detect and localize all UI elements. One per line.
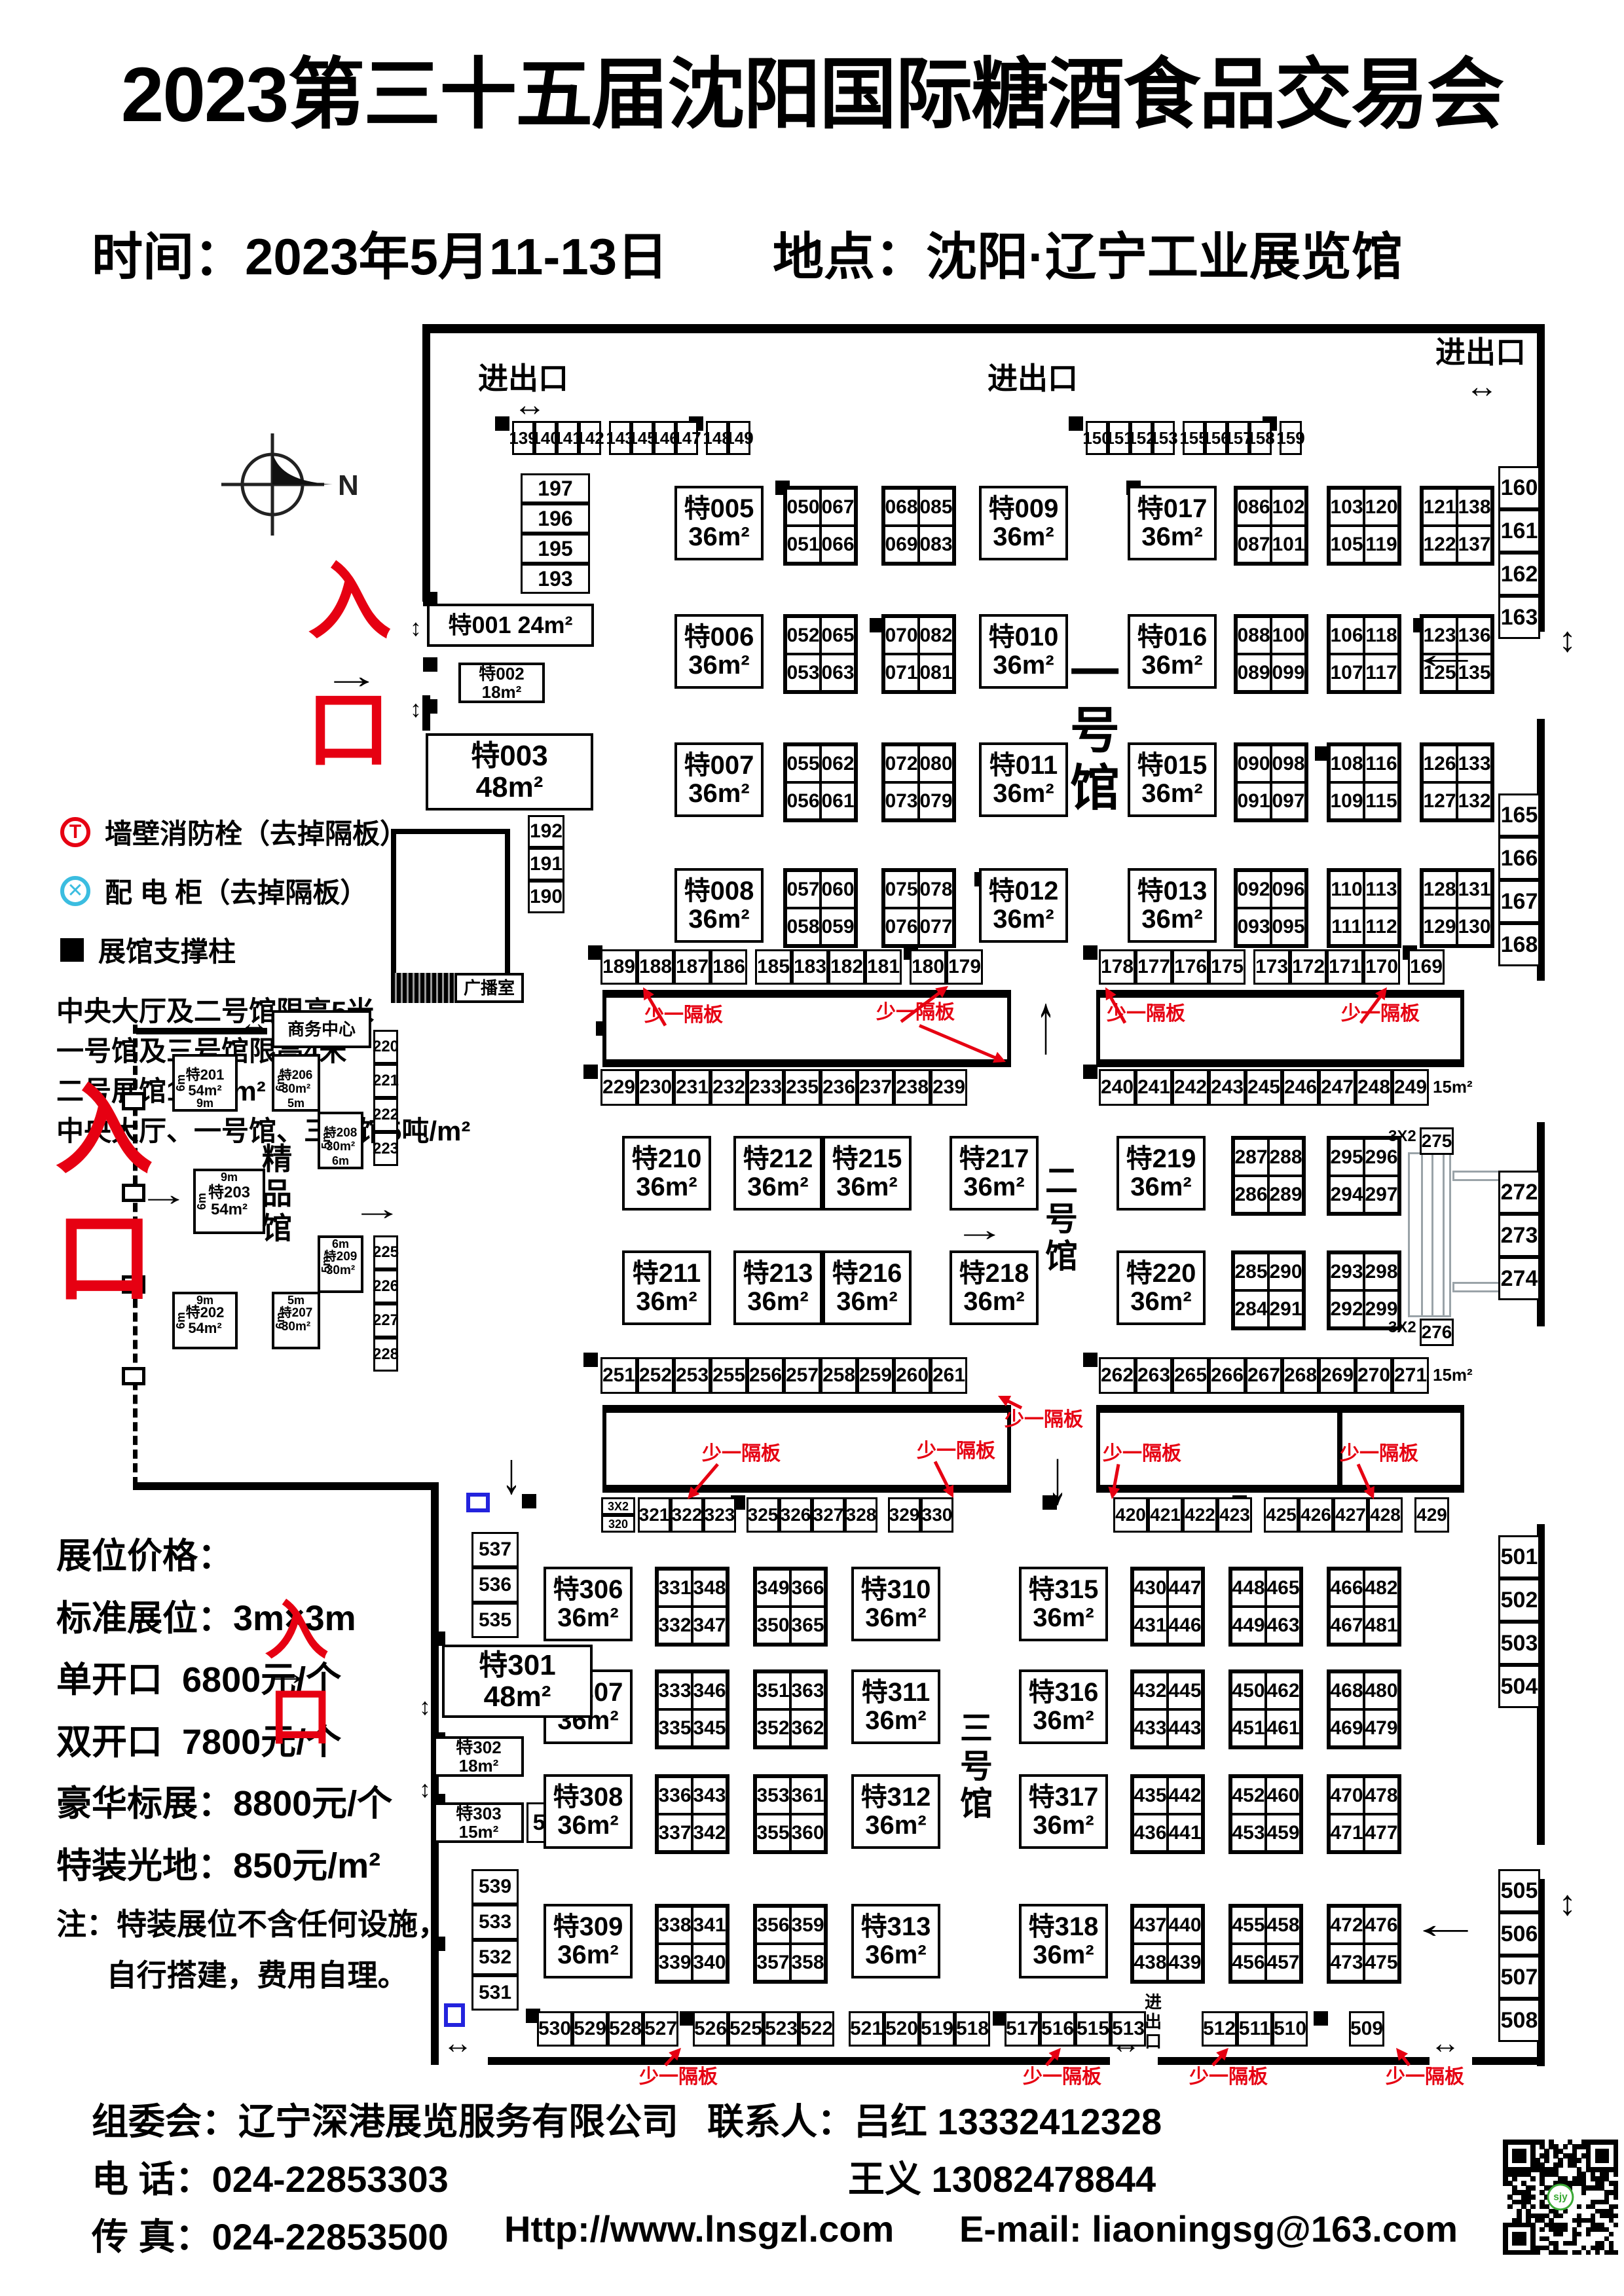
booth-237: 237 bbox=[857, 1069, 894, 1106]
special-booth-特010: 特01036m² bbox=[979, 614, 1068, 689]
booth-241: 241 bbox=[1135, 1069, 1172, 1106]
booth-cluster: 455458456457 bbox=[1228, 1904, 1303, 1984]
booth-cluster: 437440438439 bbox=[1130, 1904, 1205, 1984]
pricing-block: 展位价格： 标准展位：3m×3m 单开口 6800元/个 双开口 7800元/个… bbox=[56, 1525, 392, 1897]
qr-code: sjy bbox=[1503, 2140, 1618, 2255]
booth-527: 527 bbox=[643, 2011, 678, 2047]
contact-person1: 联系人：吕红 13332412328 bbox=[707, 2092, 1162, 2145]
booth-196: 196 bbox=[521, 503, 590, 534]
booth-095: 095 bbox=[1271, 908, 1306, 945]
booth-289: 289 bbox=[1268, 1176, 1303, 1213]
dim-label: 6m bbox=[175, 1312, 187, 1329]
booth-068: 068 bbox=[884, 488, 919, 526]
booth-358: 358 bbox=[790, 1944, 825, 1981]
dim-label: 9m bbox=[221, 1171, 238, 1183]
booth-431: 431 bbox=[1133, 1607, 1168, 1644]
gap-arrow: ↔ bbox=[1430, 2026, 1460, 2060]
special-booth-特201: 特20154m²9m6m bbox=[172, 1054, 238, 1112]
booth-cluster: 336343337342 bbox=[655, 1774, 729, 1854]
booth-102: 102 bbox=[1271, 488, 1306, 526]
booth-338: 338 bbox=[657, 1906, 692, 1944]
booth-327: 327 bbox=[812, 1497, 845, 1533]
booth-131: 131 bbox=[1457, 871, 1492, 908]
booth-167: 167 bbox=[1498, 880, 1540, 923]
partition-note: 少一隔板 bbox=[1386, 2066, 1464, 2089]
booth-363: 363 bbox=[790, 1672, 825, 1709]
booth-173: 173 bbox=[1253, 949, 1290, 985]
booth-274: 274 bbox=[1498, 1257, 1540, 1300]
booth-170: 170 bbox=[1363, 949, 1400, 985]
booth-122: 122 bbox=[1422, 526, 1457, 563]
booth-421: 421 bbox=[1148, 1497, 1183, 1533]
booth-472: 472 bbox=[1329, 1906, 1364, 1944]
partition-note: 少一隔板 bbox=[1341, 1003, 1420, 1026]
booth-326: 326 bbox=[779, 1497, 812, 1533]
place-line: 地点：沈阳·辽宁工业展览馆 bbox=[773, 216, 1403, 289]
entry-exit-label: 进出口 bbox=[1435, 335, 1526, 370]
booth-359: 359 bbox=[790, 1906, 825, 1944]
special-booth-特210: 特21036m² bbox=[622, 1136, 711, 1211]
booth-197: 197 bbox=[521, 473, 590, 503]
booth-293: 293 bbox=[1329, 1253, 1364, 1290]
area-note: 15m² bbox=[1433, 1078, 1473, 1097]
flow-arrow: ↑ bbox=[1036, 973, 1056, 1072]
special-booth-特303: 特30315m² bbox=[434, 1802, 524, 1843]
dim-label: 6m bbox=[175, 1074, 187, 1091]
booth-107: 107 bbox=[1329, 654, 1364, 691]
booth-504: 504 bbox=[1498, 1665, 1540, 1708]
support-pillar-icon bbox=[1083, 945, 1098, 960]
booth-510: 510 bbox=[1272, 2011, 1308, 2047]
booth-459: 459 bbox=[1266, 1814, 1301, 1851]
booth-476: 476 bbox=[1364, 1906, 1399, 1944]
booth-366: 366 bbox=[790, 1569, 825, 1607]
booth-128: 128 bbox=[1422, 871, 1457, 908]
booth-059: 059 bbox=[821, 908, 855, 945]
booth-285: 285 bbox=[1234, 1253, 1268, 1290]
booth-455: 455 bbox=[1231, 1906, 1266, 1944]
booth-cluster: 110113111112 bbox=[1327, 868, 1401, 948]
fax-line: 传 真：024-22853500 bbox=[92, 2208, 449, 2261]
size-note: 3X2 bbox=[1388, 1127, 1416, 1146]
legend-pillar: 展馆支撑柱 bbox=[60, 930, 236, 970]
special-booth-特317: 特31736m² bbox=[1019, 1774, 1108, 1849]
booth-cluster: 088100089099 bbox=[1234, 614, 1308, 694]
booth-536: 536 bbox=[471, 1567, 519, 1603]
corridor-room bbox=[1096, 990, 1464, 1067]
wall bbox=[505, 829, 510, 975]
booth-115: 115 bbox=[1364, 782, 1399, 820]
booth-121: 121 bbox=[1422, 488, 1457, 526]
booth-247: 247 bbox=[1319, 1069, 1356, 1106]
booth-539: 539 bbox=[471, 1869, 519, 1904]
booth-479: 479 bbox=[1364, 1709, 1399, 1747]
booth-532: 532 bbox=[471, 1940, 519, 1975]
booth-331: 331 bbox=[657, 1569, 692, 1607]
booth-078: 078 bbox=[919, 871, 953, 908]
booth-447: 447 bbox=[1168, 1569, 1202, 1607]
booth-cluster: 128131129130 bbox=[1420, 868, 1494, 948]
booth-191: 191 bbox=[528, 848, 564, 881]
booth-cluster: 121138122137 bbox=[1420, 486, 1494, 566]
booth-060: 060 bbox=[821, 871, 855, 908]
special-booth-特208: 特20830m²6m5m bbox=[318, 1112, 363, 1169]
booth-238: 238 bbox=[894, 1069, 931, 1106]
gap-arrow: ↔ bbox=[1466, 368, 1498, 406]
booth-481: 481 bbox=[1364, 1607, 1399, 1644]
booth-242: 242 bbox=[1172, 1069, 1209, 1106]
booth-272: 272 bbox=[1498, 1171, 1540, 1214]
booth-147: 147 bbox=[676, 421, 698, 455]
gap-arrow: ↔ bbox=[1111, 2026, 1141, 2060]
booth-362: 362 bbox=[790, 1709, 825, 1747]
booth-187: 187 bbox=[674, 949, 710, 985]
booth-530: 530 bbox=[537, 2011, 572, 2047]
booth-503: 503 bbox=[1498, 1622, 1540, 1665]
booth-322: 322 bbox=[671, 1497, 703, 1533]
partition-note: 少一隔板 bbox=[1189, 2066, 1268, 2089]
flow-arrow: → bbox=[351, 1190, 403, 1228]
booth-427: 427 bbox=[1333, 1497, 1368, 1533]
booth-448: 448 bbox=[1231, 1569, 1266, 1607]
booth-506: 506 bbox=[1498, 1912, 1540, 1956]
contact-person2: 王义 13082478844 bbox=[848, 2150, 1156, 2203]
special-booth-特301: 特30148m² bbox=[442, 1645, 593, 1718]
booth-093: 093 bbox=[1236, 908, 1271, 945]
special-booth-特005: 特00536m² bbox=[674, 486, 764, 560]
booth-502: 502 bbox=[1498, 1578, 1540, 1622]
booth-cluster: 295296294297 bbox=[1327, 1136, 1401, 1216]
page-title: 2023第三十五届沈阳国际糖酒食品交易会 bbox=[0, 31, 1624, 143]
booth-335: 335 bbox=[657, 1709, 692, 1747]
booth-166: 166 bbox=[1498, 837, 1540, 880]
booth-529: 529 bbox=[572, 2011, 608, 2047]
booth-437: 437 bbox=[1133, 1906, 1168, 1944]
qr-logo: sjy bbox=[1547, 2183, 1574, 2210]
wall bbox=[391, 829, 510, 834]
gap-arrow: ↕ bbox=[419, 1776, 431, 1802]
booth-101: 101 bbox=[1271, 526, 1306, 563]
booth-061: 061 bbox=[821, 782, 855, 820]
entrance-label: 口 bbox=[268, 1680, 333, 1754]
booth-265: 265 bbox=[1172, 1357, 1209, 1394]
booth-091: 091 bbox=[1236, 782, 1271, 820]
booth-257: 257 bbox=[784, 1357, 821, 1394]
booth-521: 521 bbox=[849, 2011, 884, 2047]
booth-222: 222 bbox=[373, 1098, 398, 1132]
support-pillar-icon bbox=[423, 699, 437, 714]
booth-075: 075 bbox=[884, 871, 919, 908]
booth-446: 446 bbox=[1168, 1607, 1202, 1644]
booth-429: 429 bbox=[1414, 1497, 1449, 1533]
booth-273: 273 bbox=[1498, 1214, 1540, 1257]
wall bbox=[391, 829, 396, 975]
booth-072: 072 bbox=[884, 745, 919, 782]
booth-436: 436 bbox=[1133, 1814, 1168, 1851]
booth-050: 050 bbox=[786, 488, 821, 526]
booth-cluster: 468480469479 bbox=[1327, 1669, 1401, 1749]
booth-356: 356 bbox=[756, 1906, 790, 1944]
booth-cluster: 092096093095 bbox=[1234, 868, 1308, 948]
booth-099: 099 bbox=[1271, 654, 1306, 691]
booth-518: 518 bbox=[955, 2011, 990, 2047]
support-pillar-icon bbox=[1069, 416, 1083, 431]
wall bbox=[1158, 2057, 1430, 2065]
booth-236: 236 bbox=[821, 1069, 857, 1106]
booth-cluster: 108116109115 bbox=[1327, 742, 1401, 822]
booth-475: 475 bbox=[1364, 1944, 1399, 1981]
booth-112: 112 bbox=[1364, 908, 1399, 945]
booth-351: 351 bbox=[756, 1672, 790, 1709]
booth-467: 467 bbox=[1329, 1607, 1364, 1644]
dim-label: 9m bbox=[196, 1097, 213, 1109]
booth-159: 159 bbox=[1280, 421, 1302, 455]
booth-450: 450 bbox=[1231, 1672, 1266, 1709]
dim-label: 6m bbox=[332, 1238, 349, 1250]
booth-177: 177 bbox=[1135, 949, 1172, 985]
booth-260: 260 bbox=[894, 1357, 931, 1394]
booth-100: 100 bbox=[1271, 617, 1306, 654]
booth-109: 109 bbox=[1329, 782, 1364, 820]
wall bbox=[1472, 2057, 1545, 2065]
booth-cluster: 057060058059 bbox=[783, 868, 858, 948]
booth-120: 120 bbox=[1364, 488, 1399, 526]
booth-cluster: 452460453459 bbox=[1228, 1774, 1303, 1854]
blue-door-marker bbox=[466, 1493, 490, 1512]
booth-cluster: 338341339340 bbox=[655, 1904, 729, 1984]
booth-269: 269 bbox=[1319, 1357, 1356, 1394]
booth-528: 528 bbox=[608, 2011, 643, 2047]
booth-517: 517 bbox=[1005, 2011, 1040, 2047]
booth-cluster: 450462451461 bbox=[1228, 1669, 1303, 1749]
special-booth-特203: 特20354m²9m6m bbox=[193, 1169, 265, 1234]
partition-note: 少一隔板 bbox=[1340, 1443, 1418, 1466]
booth-119: 119 bbox=[1364, 526, 1399, 563]
booth-291: 291 bbox=[1268, 1290, 1303, 1328]
booth-365: 365 bbox=[790, 1607, 825, 1644]
booth-149: 149 bbox=[728, 421, 750, 455]
booth-cluster: 356359357358 bbox=[753, 1904, 828, 1984]
booth-183: 183 bbox=[792, 949, 828, 985]
booth-079: 079 bbox=[919, 782, 953, 820]
door-post bbox=[122, 1367, 145, 1385]
booth-266: 266 bbox=[1209, 1357, 1246, 1394]
booth-345: 345 bbox=[692, 1709, 727, 1747]
flow-arrow: ← bbox=[1408, 630, 1483, 678]
booth-522: 522 bbox=[799, 2011, 834, 2047]
booth-cluster: 333346335345 bbox=[655, 1669, 729, 1749]
booth-cluster: 430447431446 bbox=[1130, 1567, 1205, 1647]
hall1-label: 一 号 馆 bbox=[1070, 646, 1120, 817]
booth-511: 511 bbox=[1237, 2011, 1272, 2047]
special-booth-特302: 特30218m² bbox=[434, 1736, 524, 1777]
booth-297: 297 bbox=[1364, 1176, 1399, 1213]
booth-063: 063 bbox=[821, 654, 855, 691]
booth-111: 111 bbox=[1329, 908, 1364, 945]
special-booth-特309: 特30936m² bbox=[544, 1904, 633, 1978]
booth-445: 445 bbox=[1168, 1672, 1202, 1709]
flow-arrow: → bbox=[953, 1211, 1006, 1249]
booth-468: 468 bbox=[1329, 1672, 1364, 1709]
special-booth-商务中心: 商务中心 bbox=[272, 1010, 371, 1048]
gap-arrow: ↕ bbox=[410, 695, 422, 722]
booth-320: 320 bbox=[601, 1515, 635, 1533]
booth-337: 337 bbox=[657, 1814, 692, 1851]
entrance-label: 入 bbox=[265, 1594, 329, 1667]
booth-352: 352 bbox=[756, 1709, 790, 1747]
special-booth-特311: 特31136m² bbox=[851, 1669, 940, 1744]
booth-451: 451 bbox=[1231, 1709, 1266, 1747]
blue-door-marker bbox=[444, 2003, 465, 2027]
booth-192: 192 bbox=[528, 815, 564, 848]
special-booth-广播室: 广播室 bbox=[454, 973, 524, 1003]
hall3-label: 三 号 馆 bbox=[960, 1710, 993, 1823]
booth-295: 295 bbox=[1329, 1139, 1364, 1176]
special-booth-特211: 特21136m² bbox=[622, 1250, 711, 1325]
booth-235: 235 bbox=[784, 1069, 821, 1106]
special-booth-特006: 特00636m² bbox=[674, 614, 764, 689]
support-pillar-icon bbox=[423, 657, 437, 672]
booth-426: 426 bbox=[1299, 1497, 1333, 1533]
booth-cluster: 052065053063 bbox=[783, 614, 858, 694]
booth-053: 053 bbox=[786, 654, 821, 691]
booth-533: 533 bbox=[471, 1904, 519, 1940]
booth-229: 229 bbox=[600, 1069, 637, 1106]
support-pillar-icon bbox=[522, 1494, 536, 1508]
booth-248: 248 bbox=[1356, 1069, 1392, 1106]
dim-label: 6m bbox=[274, 1312, 286, 1329]
support-pillar-icon bbox=[583, 1065, 598, 1079]
booth-195: 195 bbox=[521, 534, 590, 564]
support-pillar-icon bbox=[431, 1631, 445, 1646]
booth-103: 103 bbox=[1329, 488, 1364, 526]
special-booth-特016: 特01636m² bbox=[1128, 614, 1217, 689]
special-booth-特215: 特21536m² bbox=[822, 1136, 912, 1211]
booth-456: 456 bbox=[1231, 1944, 1266, 1981]
booth-178: 178 bbox=[1099, 949, 1135, 985]
booth-441: 441 bbox=[1168, 1814, 1202, 1851]
booth-098: 098 bbox=[1271, 745, 1306, 782]
booth-cluster: 287288286289 bbox=[1231, 1136, 1306, 1216]
booth-085: 085 bbox=[919, 488, 953, 526]
support-pillar-icon bbox=[1083, 1065, 1098, 1079]
special-booth-特008: 特00836m² bbox=[674, 868, 764, 943]
booth-457: 457 bbox=[1266, 1944, 1301, 1981]
booth-349: 349 bbox=[756, 1569, 790, 1607]
partition-note: 少一隔板 bbox=[1005, 1409, 1083, 1432]
special-booth-特209: 特20930m²6m5m bbox=[318, 1235, 363, 1293]
special-booth-特206: 特20630m²5m6m bbox=[272, 1054, 320, 1112]
pricing-note: 注：特装展位不含任何设施， 自行搭建，费用自理。 bbox=[56, 1899, 448, 2001]
special-booth-特308: 特30836m² bbox=[544, 1774, 633, 1849]
svg-text:N: N bbox=[338, 469, 359, 501]
booth-175: 175 bbox=[1209, 949, 1246, 985]
booth-251: 251 bbox=[600, 1357, 637, 1394]
booth-435: 435 bbox=[1133, 1777, 1168, 1814]
booth-220: 220 bbox=[373, 1030, 398, 1064]
gap-arrow: ↕ bbox=[410, 614, 422, 641]
booth-cluster: 470478471477 bbox=[1327, 1774, 1401, 1854]
booth-168: 168 bbox=[1498, 923, 1540, 966]
hall2-label: 二 号 馆 bbox=[1045, 1163, 1078, 1276]
special-booth-特017: 特01736m² bbox=[1128, 486, 1217, 560]
booth-cluster: 106118107117 bbox=[1327, 614, 1401, 694]
pillar-icon bbox=[60, 938, 84, 962]
dim-label: 9m bbox=[196, 1294, 213, 1306]
power-cabinet-icon: ✕ bbox=[60, 876, 90, 906]
booth-263: 263 bbox=[1135, 1357, 1172, 1394]
legend-power-cabinet: ✕ 配 电 柜（去掉隔板） bbox=[60, 871, 367, 911]
booth-113: 113 bbox=[1364, 871, 1399, 908]
booth-232: 232 bbox=[710, 1069, 747, 1106]
gap-arrow: ↕ bbox=[1559, 1883, 1576, 1923]
booth-181: 181 bbox=[865, 949, 902, 985]
dim-label: 5m bbox=[320, 1256, 332, 1273]
gap-arrow: ↕ bbox=[1559, 619, 1576, 660]
booth-290: 290 bbox=[1268, 1253, 1303, 1290]
booth-275: 275 bbox=[1420, 1127, 1454, 1155]
booth-092: 092 bbox=[1236, 871, 1271, 908]
special-booth-特009: 特00936m² bbox=[979, 486, 1068, 560]
booth-070: 070 bbox=[884, 617, 919, 654]
special-booth-特213: 特21336m² bbox=[733, 1250, 822, 1325]
special-booth-特001 24m²: 特001 24m² bbox=[427, 604, 594, 647]
booth-132: 132 bbox=[1457, 782, 1492, 820]
booth-452: 452 bbox=[1231, 1777, 1266, 1814]
booth-158: 158 bbox=[1249, 421, 1272, 455]
booth-420: 420 bbox=[1113, 1497, 1148, 1533]
booth-259: 259 bbox=[857, 1357, 894, 1394]
booth-268: 268 bbox=[1282, 1357, 1319, 1394]
booth-340: 340 bbox=[692, 1944, 727, 1981]
booth-261: 261 bbox=[931, 1357, 967, 1394]
booth-252: 252 bbox=[637, 1357, 674, 1394]
booth-323: 323 bbox=[703, 1497, 736, 1533]
wall bbox=[488, 2057, 1110, 2065]
booth-343: 343 bbox=[692, 1777, 727, 1814]
phone-line: 电 话：024-22853303 bbox=[92, 2150, 449, 2203]
booth-526: 526 bbox=[693, 2011, 728, 2047]
booth-245: 245 bbox=[1246, 1069, 1282, 1106]
booth-cluster: 068085069083 bbox=[881, 486, 956, 566]
booth-271: 271 bbox=[1392, 1357, 1429, 1394]
booth-057: 057 bbox=[786, 871, 821, 908]
booth-065: 065 bbox=[821, 617, 855, 654]
special-booth-特219: 特21936m² bbox=[1116, 1136, 1206, 1211]
booth-255: 255 bbox=[710, 1357, 747, 1394]
booth-cluster: 285290284291 bbox=[1231, 1250, 1306, 1330]
booth-076: 076 bbox=[884, 908, 919, 945]
red-arrow-head bbox=[1106, 1487, 1120, 1501]
booth-531: 531 bbox=[471, 1975, 519, 2011]
booth-110: 110 bbox=[1329, 871, 1364, 908]
booth-171: 171 bbox=[1327, 949, 1363, 985]
trade-fair-floorplan-poster: 2023第三十五届沈阳国际糖酒食品交易会 时间：2023年5月11-13日 地点… bbox=[0, 0, 1624, 2296]
booth-535: 535 bbox=[471, 1603, 519, 1638]
support-pillar-icon bbox=[1083, 1353, 1098, 1367]
booth-357: 357 bbox=[756, 1944, 790, 1981]
booth-163: 163 bbox=[1498, 596, 1540, 639]
escalator bbox=[1408, 1152, 1451, 1317]
booth-465: 465 bbox=[1266, 1569, 1301, 1607]
booth-330: 330 bbox=[921, 1497, 953, 1533]
booth-519: 519 bbox=[919, 2011, 955, 2047]
entry-exit-label: 进 出 口 bbox=[1145, 1993, 1162, 2052]
dim-label: 5m bbox=[320, 1132, 332, 1149]
dim-label: 5m bbox=[287, 1294, 304, 1306]
booth-523: 523 bbox=[764, 2011, 799, 2047]
partition-note: 少一隔板 bbox=[1103, 1443, 1181, 1466]
